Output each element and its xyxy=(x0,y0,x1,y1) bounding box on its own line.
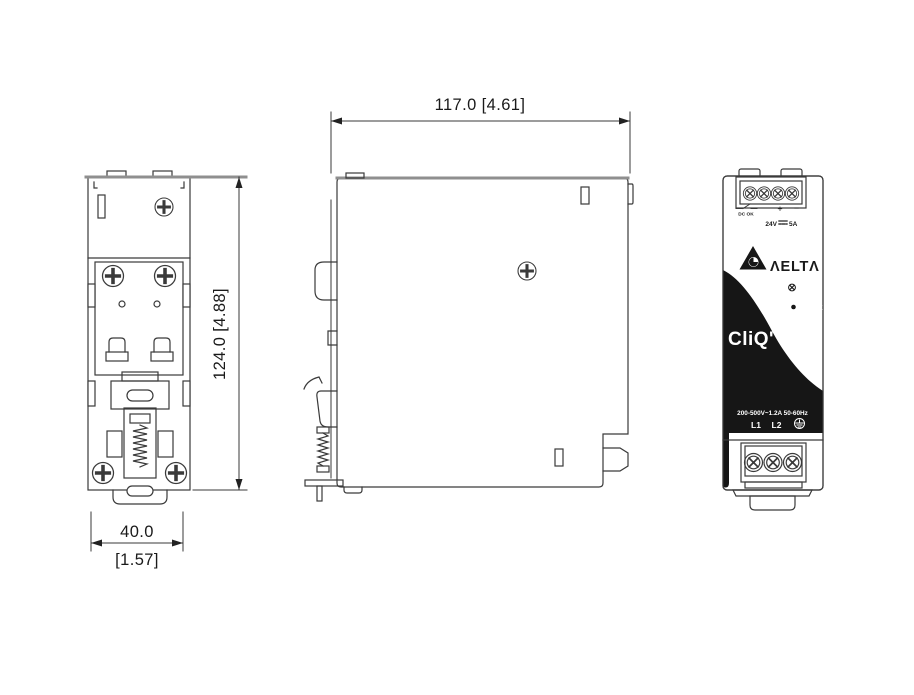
phillips-screw-icon xyxy=(155,198,173,216)
height-dimension-label: 124.0 [4.88] xyxy=(211,288,229,380)
phillips-screw-icon xyxy=(93,463,114,484)
din-clip-spring-icon xyxy=(318,433,328,466)
depth-dimension-label: 117.0 [4.61] xyxy=(435,96,526,114)
terminal-screw-icon xyxy=(771,187,784,200)
terminal-screw-icon xyxy=(785,187,798,200)
rear-width-dimension: 40.0 [1.57] xyxy=(91,512,183,569)
phillips-screw-icon xyxy=(155,266,176,287)
dc-ok-led-icon xyxy=(789,302,799,312)
input-rating-label: 200-500V~1.2A 50-60Hz xyxy=(737,410,808,417)
brand-logo-text: ΛELTΛ xyxy=(770,259,820,275)
bottom-clip xyxy=(750,496,795,510)
din-clip xyxy=(93,372,187,504)
vent-slot xyxy=(98,195,105,218)
phillips-screw-icon xyxy=(166,463,187,484)
rear-body xyxy=(88,177,190,490)
din-hook xyxy=(154,338,170,352)
terminal-l2-label: L2 xyxy=(772,420,782,430)
dc-ok-led-label: DC OK xyxy=(801,305,823,312)
vent-slot xyxy=(581,187,589,204)
bottom-clip xyxy=(733,490,812,496)
din-panel xyxy=(95,262,183,375)
vent-slot xyxy=(555,449,563,466)
depth-dimension: 117.0 [4.61] xyxy=(331,96,630,173)
output-voltage: 24V xyxy=(765,221,777,228)
minus-terminal-label: − xyxy=(794,203,799,213)
din-hook xyxy=(109,338,125,352)
relay-label: DC OK xyxy=(738,212,754,218)
product-logo-text: CliQ' xyxy=(728,329,774,350)
terminal-screw-icon xyxy=(764,454,782,472)
height-dimension: 124.0 [4.88] xyxy=(193,177,247,490)
terminal-l1-label: L1 xyxy=(751,420,761,430)
drawing-svg: 40.0 [1.57] 124.0 [4.88] xyxy=(0,0,914,695)
side-view xyxy=(304,173,633,501)
plus-terminal-label: + xyxy=(777,204,782,214)
width-dimension-mm: 40.0 xyxy=(120,523,154,541)
terminal-screw-icon xyxy=(757,187,770,200)
output-current: 5A xyxy=(789,221,798,228)
terminal-screw-icon xyxy=(784,454,802,472)
terminal-screw-icon xyxy=(745,454,763,472)
rear-connector xyxy=(603,448,628,471)
terminal-screw-icon xyxy=(743,187,756,200)
side-body xyxy=(337,178,628,487)
din-clip-spring-icon xyxy=(133,425,147,467)
phillips-screw-icon xyxy=(103,266,124,287)
front-view: DC OK + − 24V 5A ΛELTΛ Adjust xyxy=(723,169,823,510)
technical-drawing: 40.0 [1.57] 124.0 [4.88] xyxy=(0,0,914,695)
adjust-label: Adjust xyxy=(800,286,822,293)
width-dimension-inch: [1.57] xyxy=(115,551,159,569)
earth-ground-icon xyxy=(795,419,805,429)
phillips-screw-icon xyxy=(518,262,536,280)
